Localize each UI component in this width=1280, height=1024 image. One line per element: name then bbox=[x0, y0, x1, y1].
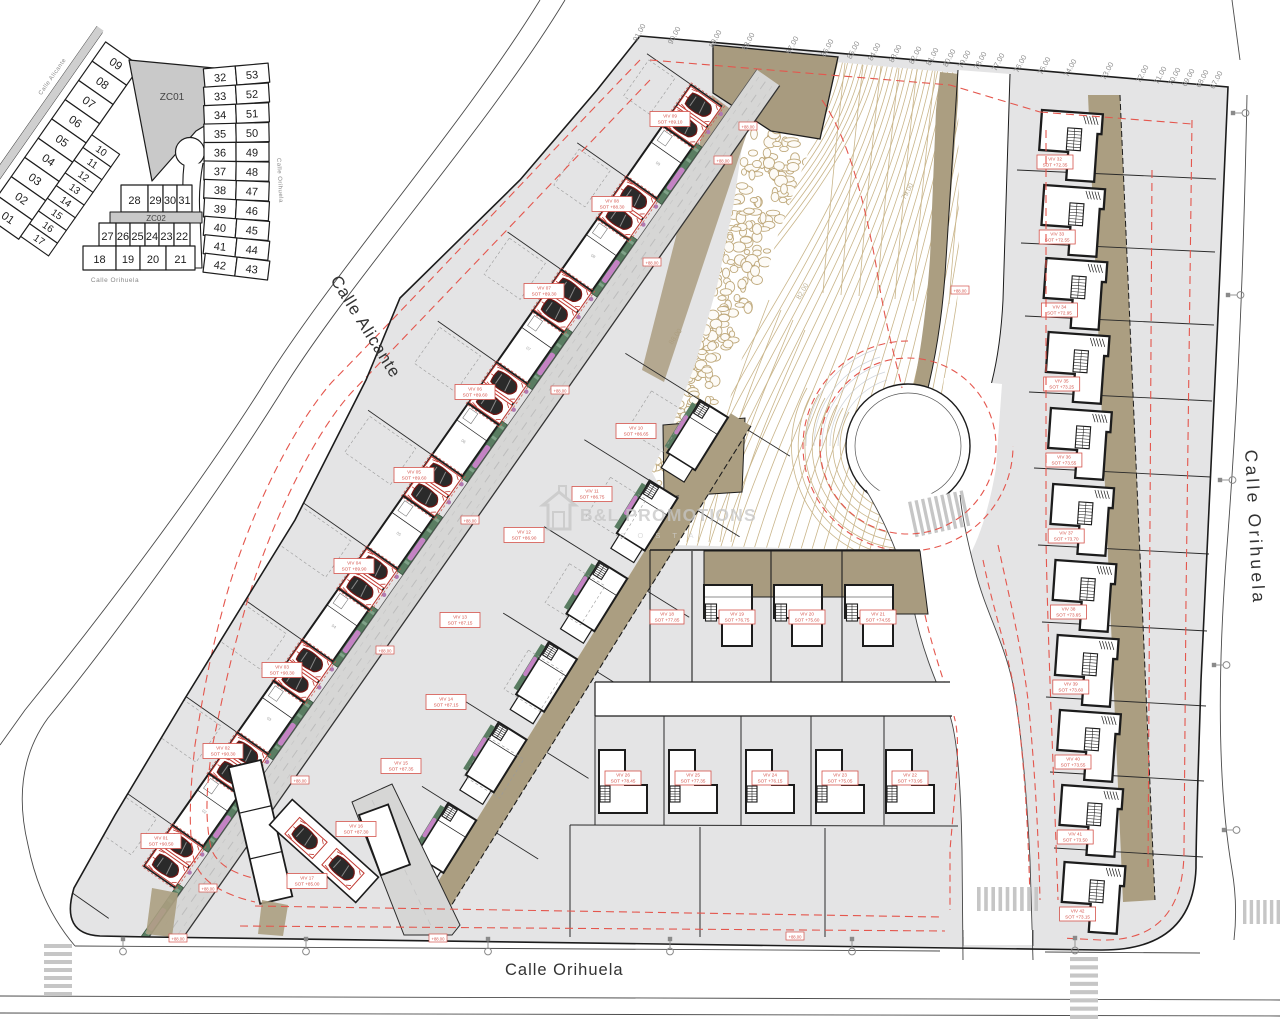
svg-text:23: 23 bbox=[160, 231, 172, 243]
svg-text:VIV 07: VIV 07 bbox=[537, 286, 551, 291]
svg-text:VIV 06: VIV 06 bbox=[468, 387, 482, 392]
svg-text:43: 43 bbox=[245, 263, 259, 276]
svg-text:Calle Orihuela: Calle Orihuela bbox=[91, 277, 139, 284]
svg-text:SOT +73.15: SOT +73.15 bbox=[1065, 915, 1090, 920]
svg-text:+88.00: +88.00 bbox=[202, 886, 216, 891]
svg-text:26: 26 bbox=[117, 231, 129, 243]
svg-text:VIV 39: VIV 39 bbox=[1064, 682, 1078, 687]
svg-text:+88.00: +88.00 bbox=[379, 648, 393, 653]
svg-text:SOT +89.90: SOT +89.90 bbox=[342, 567, 367, 572]
svg-text:VIV 41: VIV 41 bbox=[1068, 832, 1082, 837]
svg-text:SOT +86.90: SOT +86.90 bbox=[512, 536, 537, 541]
svg-text:+88.00: +88.00 bbox=[554, 388, 568, 393]
svg-text:27: 27 bbox=[101, 231, 113, 243]
svg-text:+88.00: +88.00 bbox=[954, 288, 968, 293]
svg-text:41: 41 bbox=[213, 241, 226, 254]
svg-text:48: 48 bbox=[246, 167, 258, 179]
svg-text:VIV 17: VIV 17 bbox=[300, 876, 314, 881]
svg-text:C O S T A: C O S T A bbox=[620, 531, 699, 540]
svg-text:52: 52 bbox=[246, 89, 259, 102]
svg-text:VIV 32: VIV 32 bbox=[1048, 157, 1062, 162]
svg-text:VIV 11: VIV 11 bbox=[585, 489, 599, 494]
svg-text:34: 34 bbox=[214, 110, 227, 123]
svg-text:SOT +77.35: SOT +77.35 bbox=[681, 779, 706, 784]
svg-text:VIV 01: VIV 01 bbox=[154, 836, 168, 841]
svg-text:+88.00: +88.00 bbox=[464, 518, 478, 523]
svg-text:VIV 22: VIV 22 bbox=[903, 773, 917, 778]
svg-text:VIV 15: VIV 15 bbox=[394, 761, 408, 766]
svg-text:45: 45 bbox=[245, 225, 258, 238]
svg-text:VIV 04: VIV 04 bbox=[347, 561, 361, 566]
svg-text:SOT +88.30: SOT +88.30 bbox=[600, 205, 625, 210]
svg-text:VIV 21: VIV 21 bbox=[871, 612, 885, 617]
svg-text:ZC02: ZC02 bbox=[146, 214, 166, 223]
svg-text:SOT +87.15: SOT +87.15 bbox=[448, 621, 473, 626]
svg-text:32: 32 bbox=[214, 72, 227, 85]
svg-text:VIV 25: VIV 25 bbox=[686, 773, 700, 778]
svg-text:SOT +73.55: SOT +73.55 bbox=[1051, 461, 1076, 466]
svg-text:VIV 02: VIV 02 bbox=[216, 746, 230, 751]
svg-text:33: 33 bbox=[214, 91, 227, 104]
svg-text:+88.00: +88.00 bbox=[646, 260, 660, 265]
svg-text:VIV 35: VIV 35 bbox=[1055, 379, 1069, 384]
svg-text:SOT +89.10: SOT +89.10 bbox=[658, 120, 683, 125]
svg-text:SOT +89.30: SOT +89.30 bbox=[532, 292, 557, 297]
svg-text:+88.00: +88.00 bbox=[294, 778, 308, 783]
svg-text:31: 31 bbox=[178, 195, 190, 207]
svg-text:VIV 20: VIV 20 bbox=[800, 612, 814, 617]
svg-text:VIV 33: VIV 33 bbox=[1050, 232, 1064, 237]
svg-text:24: 24 bbox=[146, 231, 158, 243]
svg-text:VIV 05: VIV 05 bbox=[407, 470, 421, 475]
svg-text:SOT +86.65: SOT +86.65 bbox=[624, 432, 649, 437]
svg-text:37: 37 bbox=[214, 166, 226, 178]
svg-text:49: 49 bbox=[246, 147, 258, 159]
svg-text:VIV 10: VIV 10 bbox=[629, 426, 643, 431]
svg-text:SOT +72.55: SOT +72.55 bbox=[1045, 238, 1070, 243]
svg-text:SOT +72.95: SOT +72.95 bbox=[1047, 311, 1072, 316]
svg-text:53: 53 bbox=[245, 69, 258, 82]
svg-text:SOT +76.75: SOT +76.75 bbox=[725, 618, 750, 623]
svg-text:VIV 03: VIV 03 bbox=[275, 665, 289, 670]
svg-text:35: 35 bbox=[214, 129, 227, 141]
svg-text:SOT +89.60: SOT +89.60 bbox=[402, 476, 427, 481]
svg-text:28: 28 bbox=[128, 195, 140, 207]
svg-text:SOT +86.75: SOT +86.75 bbox=[580, 495, 605, 500]
svg-text:+88.00: +88.00 bbox=[742, 124, 756, 129]
svg-text:+88.00: +88.00 bbox=[172, 936, 186, 941]
svg-text:SOT +89.60: SOT +89.60 bbox=[463, 393, 488, 398]
svg-text:VIV 09: VIV 09 bbox=[663, 114, 677, 119]
svg-text:29: 29 bbox=[149, 195, 161, 207]
svg-text:30: 30 bbox=[164, 195, 176, 207]
svg-text:ZC01: ZC01 bbox=[160, 92, 185, 103]
svg-text:25: 25 bbox=[131, 231, 143, 243]
svg-text:VIV 37: VIV 37 bbox=[1059, 531, 1073, 536]
svg-text:VIV 34: VIV 34 bbox=[1053, 305, 1067, 310]
svg-text:SOT +73.95: SOT +73.95 bbox=[898, 779, 923, 784]
svg-text:+88.00: +88.00 bbox=[789, 934, 803, 939]
svg-text:20: 20 bbox=[147, 254, 159, 266]
svg-text:VIV 14: VIV 14 bbox=[439, 697, 453, 702]
svg-text:SOT +87.30: SOT +87.30 bbox=[344, 830, 369, 835]
svg-text:VIV 36: VIV 36 bbox=[1057, 455, 1071, 460]
svg-text:VIV 38: VIV 38 bbox=[1062, 607, 1076, 612]
svg-text:+88.00: +88.00 bbox=[432, 936, 446, 941]
svg-text:44: 44 bbox=[245, 244, 258, 257]
svg-text:VIV 26: VIV 26 bbox=[616, 773, 630, 778]
svg-text:42: 42 bbox=[213, 259, 227, 272]
svg-text:SOT +87.15: SOT +87.15 bbox=[434, 703, 459, 708]
svg-text:18: 18 bbox=[93, 254, 105, 266]
svg-text:SOT +73.50: SOT +73.50 bbox=[1063, 838, 1088, 843]
svg-text:SOT +76.15: SOT +76.15 bbox=[758, 779, 783, 784]
svg-text:SOT +90.50: SOT +90.50 bbox=[149, 842, 174, 847]
svg-text:SOT +77.85: SOT +77.85 bbox=[655, 618, 680, 623]
svg-text:36: 36 bbox=[214, 147, 226, 159]
svg-text:VIV 16: VIV 16 bbox=[349, 824, 363, 829]
svg-text:SOT +73.60: SOT +73.60 bbox=[1058, 688, 1083, 693]
svg-text:B&L PROMOTIONS: B&L PROMOTIONS bbox=[580, 505, 757, 525]
svg-text:21: 21 bbox=[174, 254, 186, 266]
svg-text:SOT +74.55: SOT +74.55 bbox=[866, 618, 891, 623]
svg-text:VIV 42: VIV 42 bbox=[1071, 909, 1085, 914]
svg-text:40: 40 bbox=[213, 222, 226, 235]
svg-text:VIV 12: VIV 12 bbox=[517, 530, 531, 535]
svg-text:SOT +78.45: SOT +78.45 bbox=[611, 779, 636, 784]
svg-text:VIV 19: VIV 19 bbox=[730, 612, 744, 617]
svg-text:50: 50 bbox=[246, 128, 259, 140]
svg-text:SOT +73.65: SOT +73.65 bbox=[1056, 613, 1081, 618]
svg-text:SOT +90.30: SOT +90.30 bbox=[270, 671, 295, 676]
svg-text:19: 19 bbox=[122, 254, 134, 266]
svg-text:+88.00: +88.00 bbox=[717, 158, 731, 163]
svg-text:VIV 13: VIV 13 bbox=[453, 615, 467, 620]
svg-text:38: 38 bbox=[214, 185, 227, 197]
svg-text:VIV 24: VIV 24 bbox=[763, 773, 777, 778]
svg-text:VIV 18: VIV 18 bbox=[660, 612, 674, 617]
svg-text:SOT +85.00: SOT +85.00 bbox=[295, 882, 320, 887]
svg-text:22: 22 bbox=[176, 231, 188, 243]
svg-text:46: 46 bbox=[245, 205, 258, 218]
svg-text:51: 51 bbox=[246, 108, 259, 121]
svg-text:SOT +90.30: SOT +90.30 bbox=[211, 752, 236, 757]
svg-text:SOT +73.70: SOT +73.70 bbox=[1054, 537, 1079, 542]
svg-text:VIV 40: VIV 40 bbox=[1066, 757, 1080, 762]
svg-text:Calle Orihuela: Calle Orihuela bbox=[505, 961, 624, 979]
svg-text:39: 39 bbox=[213, 203, 226, 216]
svg-text:SOT +73.55: SOT +73.55 bbox=[1061, 763, 1086, 768]
svg-text:SOT +87.35: SOT +87.35 bbox=[389, 767, 414, 772]
svg-text:SOT +75.60: SOT +75.60 bbox=[795, 618, 820, 623]
svg-text:47: 47 bbox=[246, 186, 259, 198]
svg-text:VIV 23: VIV 23 bbox=[833, 773, 847, 778]
svg-text:SOT +75.05: SOT +75.05 bbox=[828, 779, 853, 784]
svg-text:SOT +73.25: SOT +73.25 bbox=[1049, 385, 1074, 390]
svg-text:VIV 08: VIV 08 bbox=[605, 199, 619, 204]
